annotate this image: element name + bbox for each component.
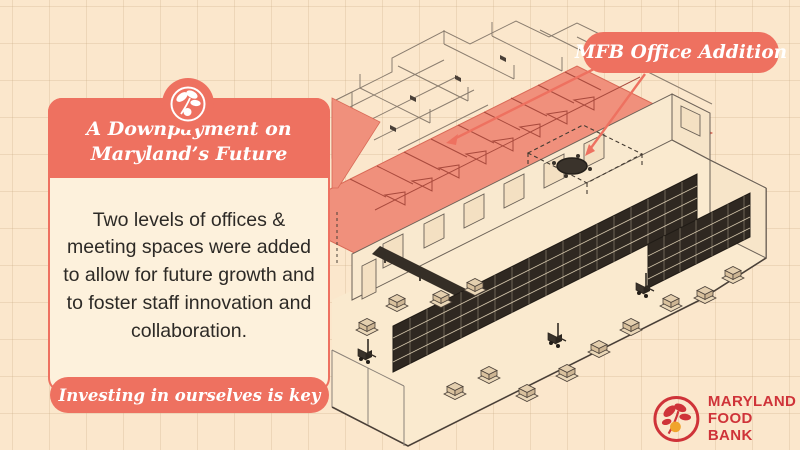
office-addition-callout-label: MFB Office Addition [575, 42, 787, 63]
card-footer-label: Investing in ourselves is key [59, 386, 321, 405]
mfb-logo-text: MARYLAND FOOD BANK [708, 394, 800, 444]
card-footer-pill: Investing in ourselves is key [50, 377, 329, 413]
card-header-line2: Maryland’s Future [91, 142, 288, 168]
mfb-logo-line1: MARYLAND [708, 394, 800, 411]
seedling-badge-icon [161, 77, 215, 131]
maryland-food-bank-logo: MARYLAND FOOD BANK [652, 394, 800, 444]
mfb-logo-icon [652, 394, 701, 444]
mfb-logo-line2: FOOD BANK [708, 411, 800, 445]
card-body-text: Two levels of offices & meeting spaces w… [60, 207, 318, 345]
office-addition-callout: MFB Office Addition [583, 32, 779, 73]
infographic-canvas: MFB Office Addition A Downpayment on Mar… [0, 0, 800, 450]
card-body: Two levels of offices & meeting spaces w… [48, 178, 330, 374]
